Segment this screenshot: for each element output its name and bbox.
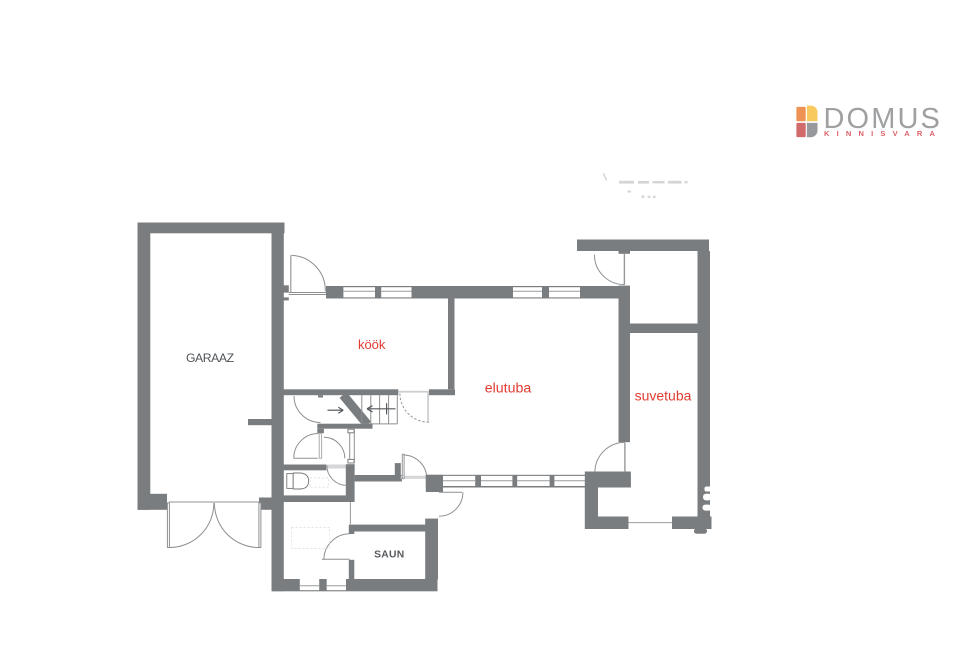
svg-text:KINNISVARA: KINNISVARA [824, 129, 942, 138]
svg-text:köök: köök [358, 337, 386, 352]
svg-text:GARAAZ: GARAAZ [186, 351, 235, 365]
svg-text:elutuba: elutuba [485, 380, 532, 396]
svg-text:suvetuba: suvetuba [635, 388, 692, 404]
svg-text:SAUN: SAUN [374, 550, 404, 561]
